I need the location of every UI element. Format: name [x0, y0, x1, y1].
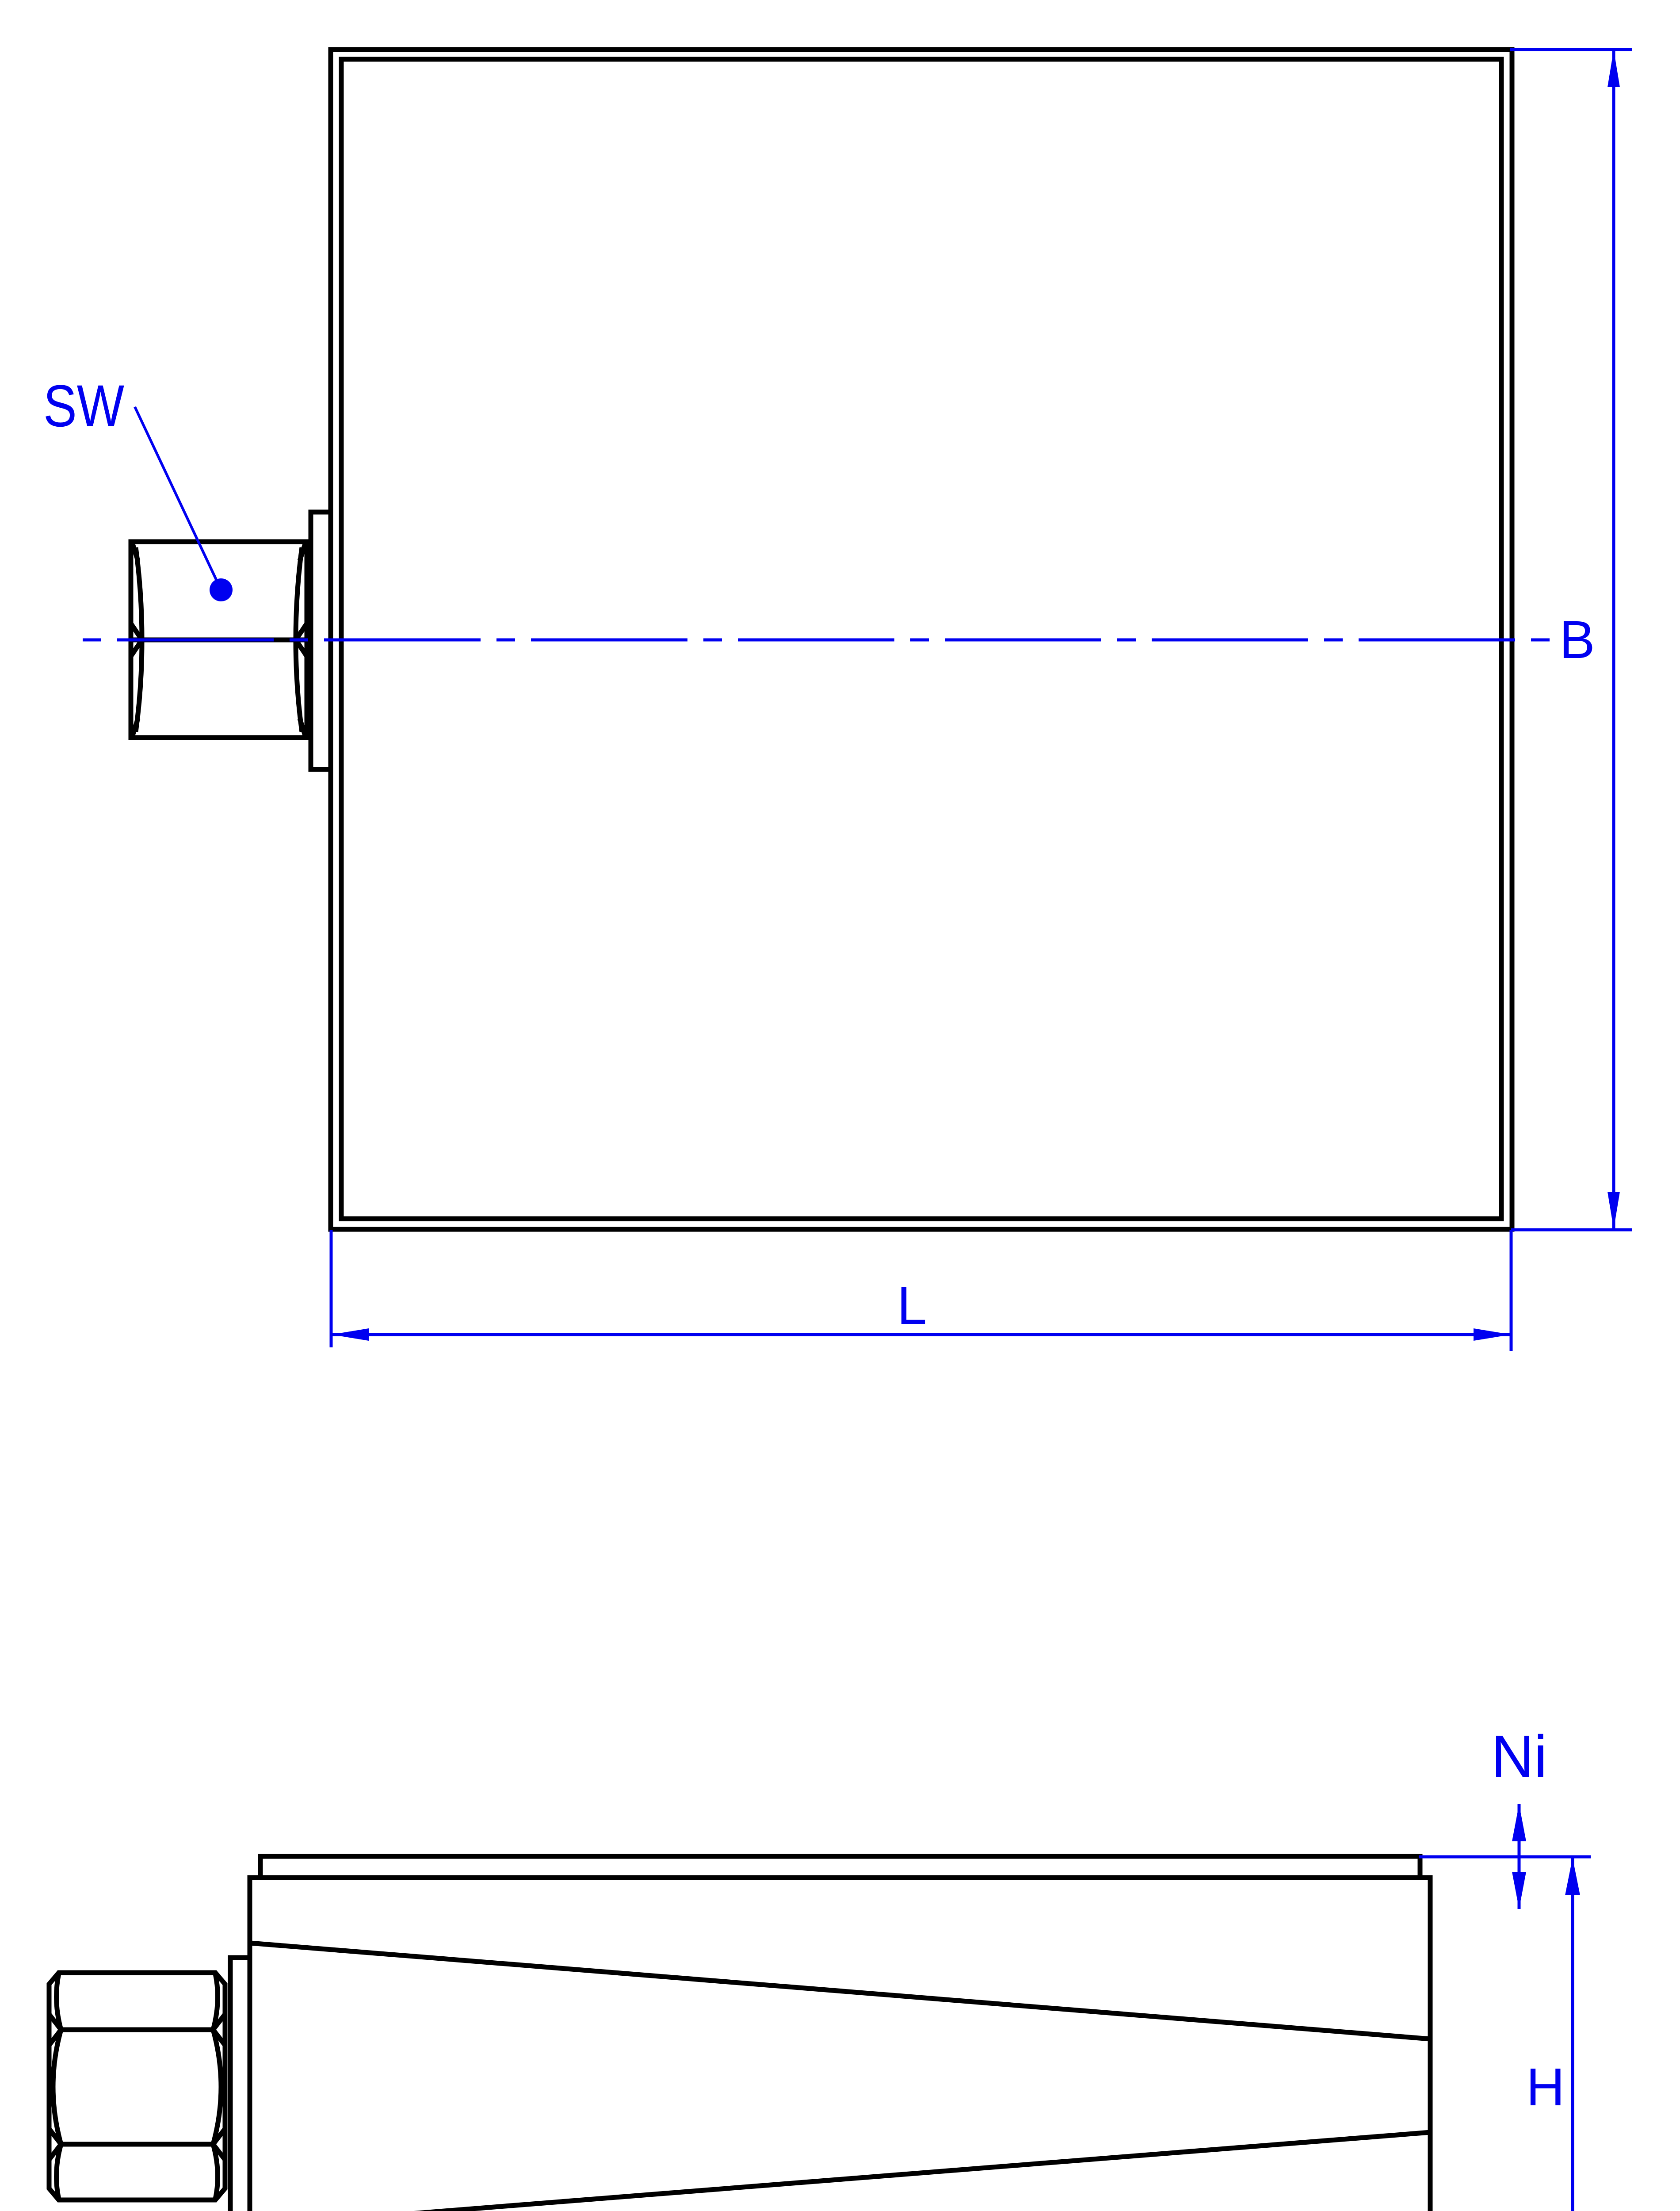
svg-text:SW: SW [43, 373, 124, 439]
svg-text:L: L [897, 1275, 927, 1335]
svg-text:H: H [1526, 2057, 1565, 2117]
svg-text:B: B [1559, 609, 1595, 669]
svg-text:Ni: Ni [1491, 1724, 1547, 1790]
